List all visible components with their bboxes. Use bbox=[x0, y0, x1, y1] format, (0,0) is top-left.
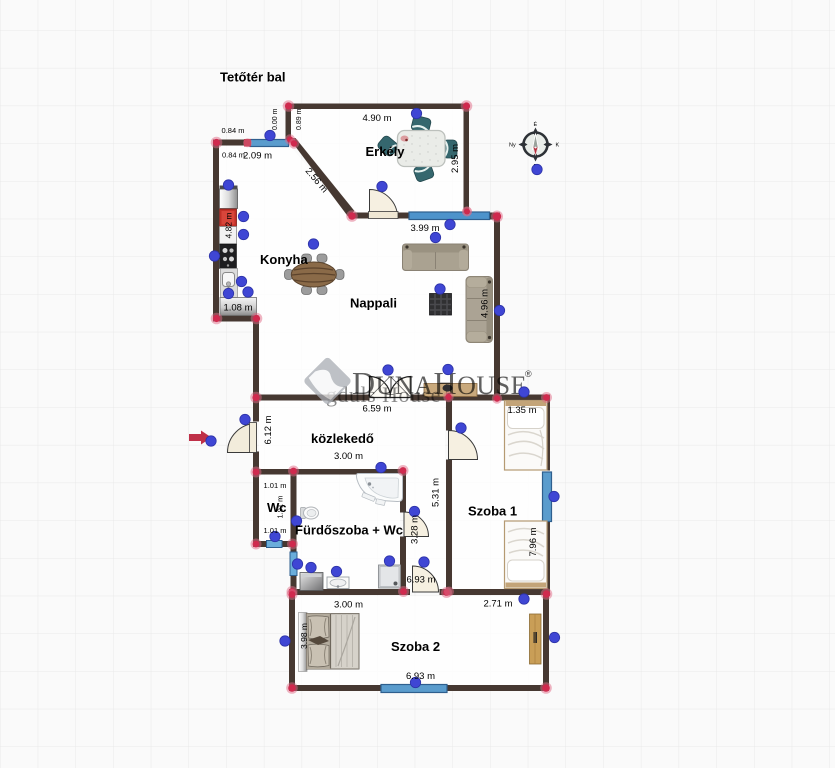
svg-text:Nappali: Nappali bbox=[350, 296, 397, 311]
svg-text:5.31 m: 5.31 m bbox=[431, 478, 442, 507]
svg-text:7.96 m: 7.96 m bbox=[528, 527, 539, 556]
svg-text:6.93 m: 6.93 m bbox=[406, 575, 435, 586]
svg-text:®: ® bbox=[525, 369, 532, 379]
svg-text:2.95 m: 2.95 m bbox=[450, 144, 461, 173]
svg-text:Erkély: Erkély bbox=[366, 144, 406, 159]
svg-text:3.98 m: 3.98 m bbox=[299, 623, 309, 649]
svg-text:4.90 m: 4.90 m bbox=[362, 113, 391, 124]
svg-text:1.35 m: 1.35 m bbox=[507, 405, 536, 416]
svg-text:közlekedő: közlekedő bbox=[311, 431, 374, 446]
svg-text:6.93 m: 6.93 m bbox=[406, 671, 435, 682]
svg-text:Szoba 1: Szoba 1 bbox=[468, 504, 517, 519]
svg-text:1.01 m: 1.01 m bbox=[264, 526, 287, 535]
svg-text:2.71 m: 2.71 m bbox=[483, 599, 512, 610]
svg-text:6.59 m: 6.59 m bbox=[362, 404, 391, 415]
svg-text:Tetőtér bal: Tetőtér bal bbox=[220, 70, 286, 85]
svg-text:0.89 m: 0.89 m bbox=[296, 108, 303, 130]
svg-text:1.01 m: 1.01 m bbox=[264, 481, 287, 490]
svg-text:Konyha: Konyha bbox=[260, 252, 308, 267]
svg-text:3.00 m: 3.00 m bbox=[334, 600, 363, 611]
svg-text:1.08 m: 1.08 m bbox=[223, 303, 252, 314]
svg-text:Ny: Ny bbox=[509, 143, 516, 149]
svg-text:4.96 m: 4.96 m bbox=[480, 289, 491, 318]
svg-text:0.00 m: 0.00 m bbox=[272, 108, 279, 130]
svg-text:0.84 m: 0.84 m bbox=[222, 151, 245, 160]
svg-text:K: K bbox=[556, 143, 560, 149]
svg-text:6.12 m: 6.12 m bbox=[263, 415, 274, 444]
svg-text:Fürdőszoba + Wc: Fürdőszoba + Wc bbox=[295, 523, 403, 538]
svg-text:0.84 m: 0.84 m bbox=[222, 126, 245, 135]
svg-text:4.82 m: 4.82 m bbox=[224, 213, 234, 239]
svg-text:Szoba 2: Szoba 2 bbox=[391, 639, 440, 654]
svg-text:3.99 m: 3.99 m bbox=[410, 223, 439, 234]
svg-text:1.91 m: 1.91 m bbox=[276, 496, 285, 519]
svg-text:2.09 m: 2.09 m bbox=[243, 151, 272, 162]
svg-text:3.28 m: 3.28 m bbox=[410, 515, 421, 544]
svg-text:É: É bbox=[534, 121, 538, 128]
svg-text:3.00 m: 3.00 m bbox=[334, 451, 363, 462]
